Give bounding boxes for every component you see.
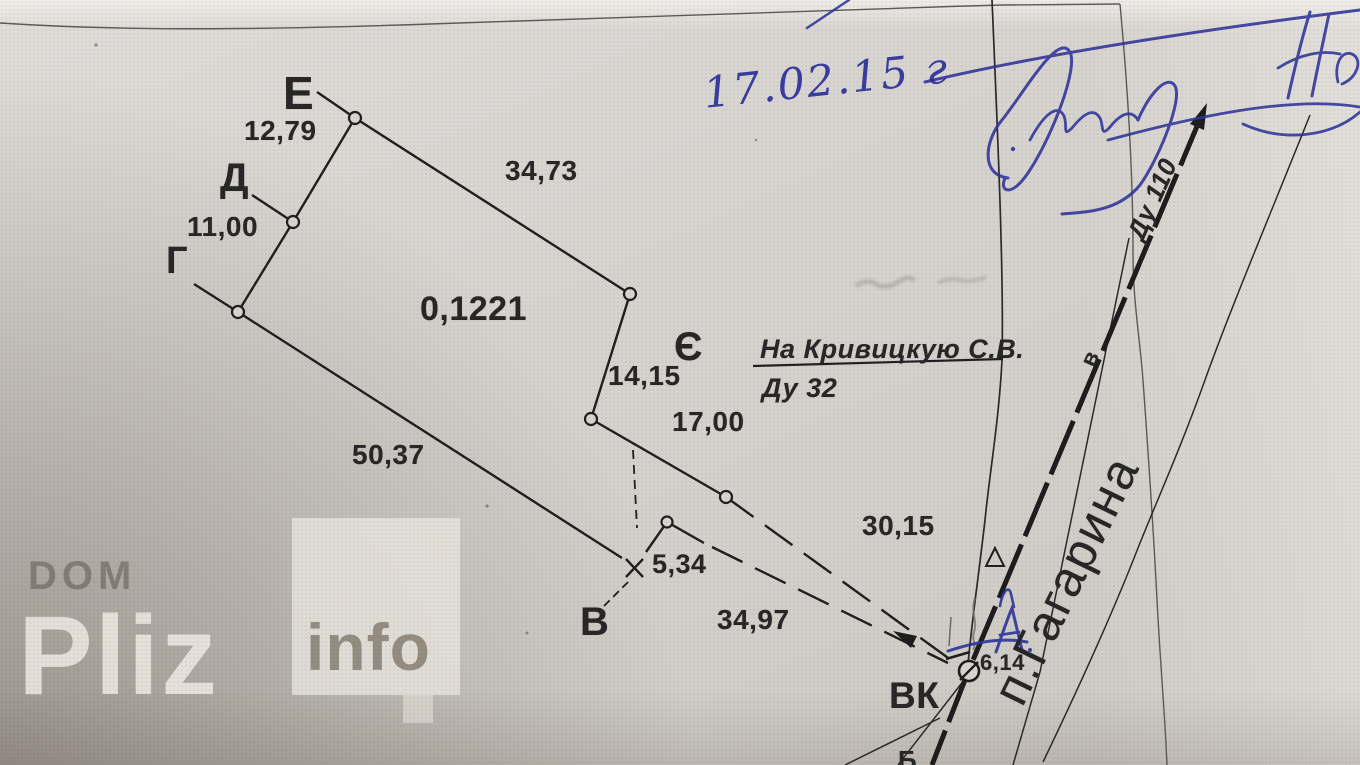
- recipient-note: На Кривицкую С.В.: [760, 336, 1024, 363]
- watermark-dom: DOM: [28, 556, 136, 596]
- dim-34-73: 34,73: [505, 157, 578, 185]
- point-label-v: В: [580, 602, 609, 642]
- erased-pencil-smudge: [856, 277, 986, 287]
- dim-5-34: 5,34: [652, 551, 707, 578]
- delta-mark: [986, 548, 1004, 566]
- dim-34-97: 34,97: [717, 606, 790, 634]
- watermark-info: info: [306, 614, 431, 680]
- dim-17-00: 17,00: [672, 408, 745, 436]
- area-value: 0,1221: [420, 292, 527, 326]
- point-v-cross-mark: [626, 559, 643, 577]
- dim-12-79: 12,79: [244, 117, 317, 145]
- point-label-vk: ВК: [889, 677, 939, 714]
- dim-50-37: 50,37: [352, 441, 425, 469]
- scanned-survey-plan: Е Д Г Є В ВК Б 12,79 34,73 11,00 0,1221 …: [0, 0, 1360, 765]
- dim-11-00: 11,00: [187, 213, 258, 241]
- signature-strokes: [807, 0, 1360, 214]
- watermark-tab: [403, 695, 433, 723]
- neighbour-parcel-boundary-line: [968, 0, 1002, 664]
- pipe-branch-note: Ду 32: [762, 375, 837, 402]
- point-label-partial-bottom: Б: [898, 747, 917, 765]
- point-label-e: Е: [283, 70, 314, 116]
- point-label-g: Г: [166, 242, 188, 280]
- point-label-d: Д: [220, 158, 249, 198]
- water-well-marker: [959, 661, 979, 681]
- watermark-pliz: Pliz: [18, 600, 219, 712]
- dim-30-15: 30,15: [862, 512, 935, 540]
- dim-14-15: 14,15: [608, 362, 681, 390]
